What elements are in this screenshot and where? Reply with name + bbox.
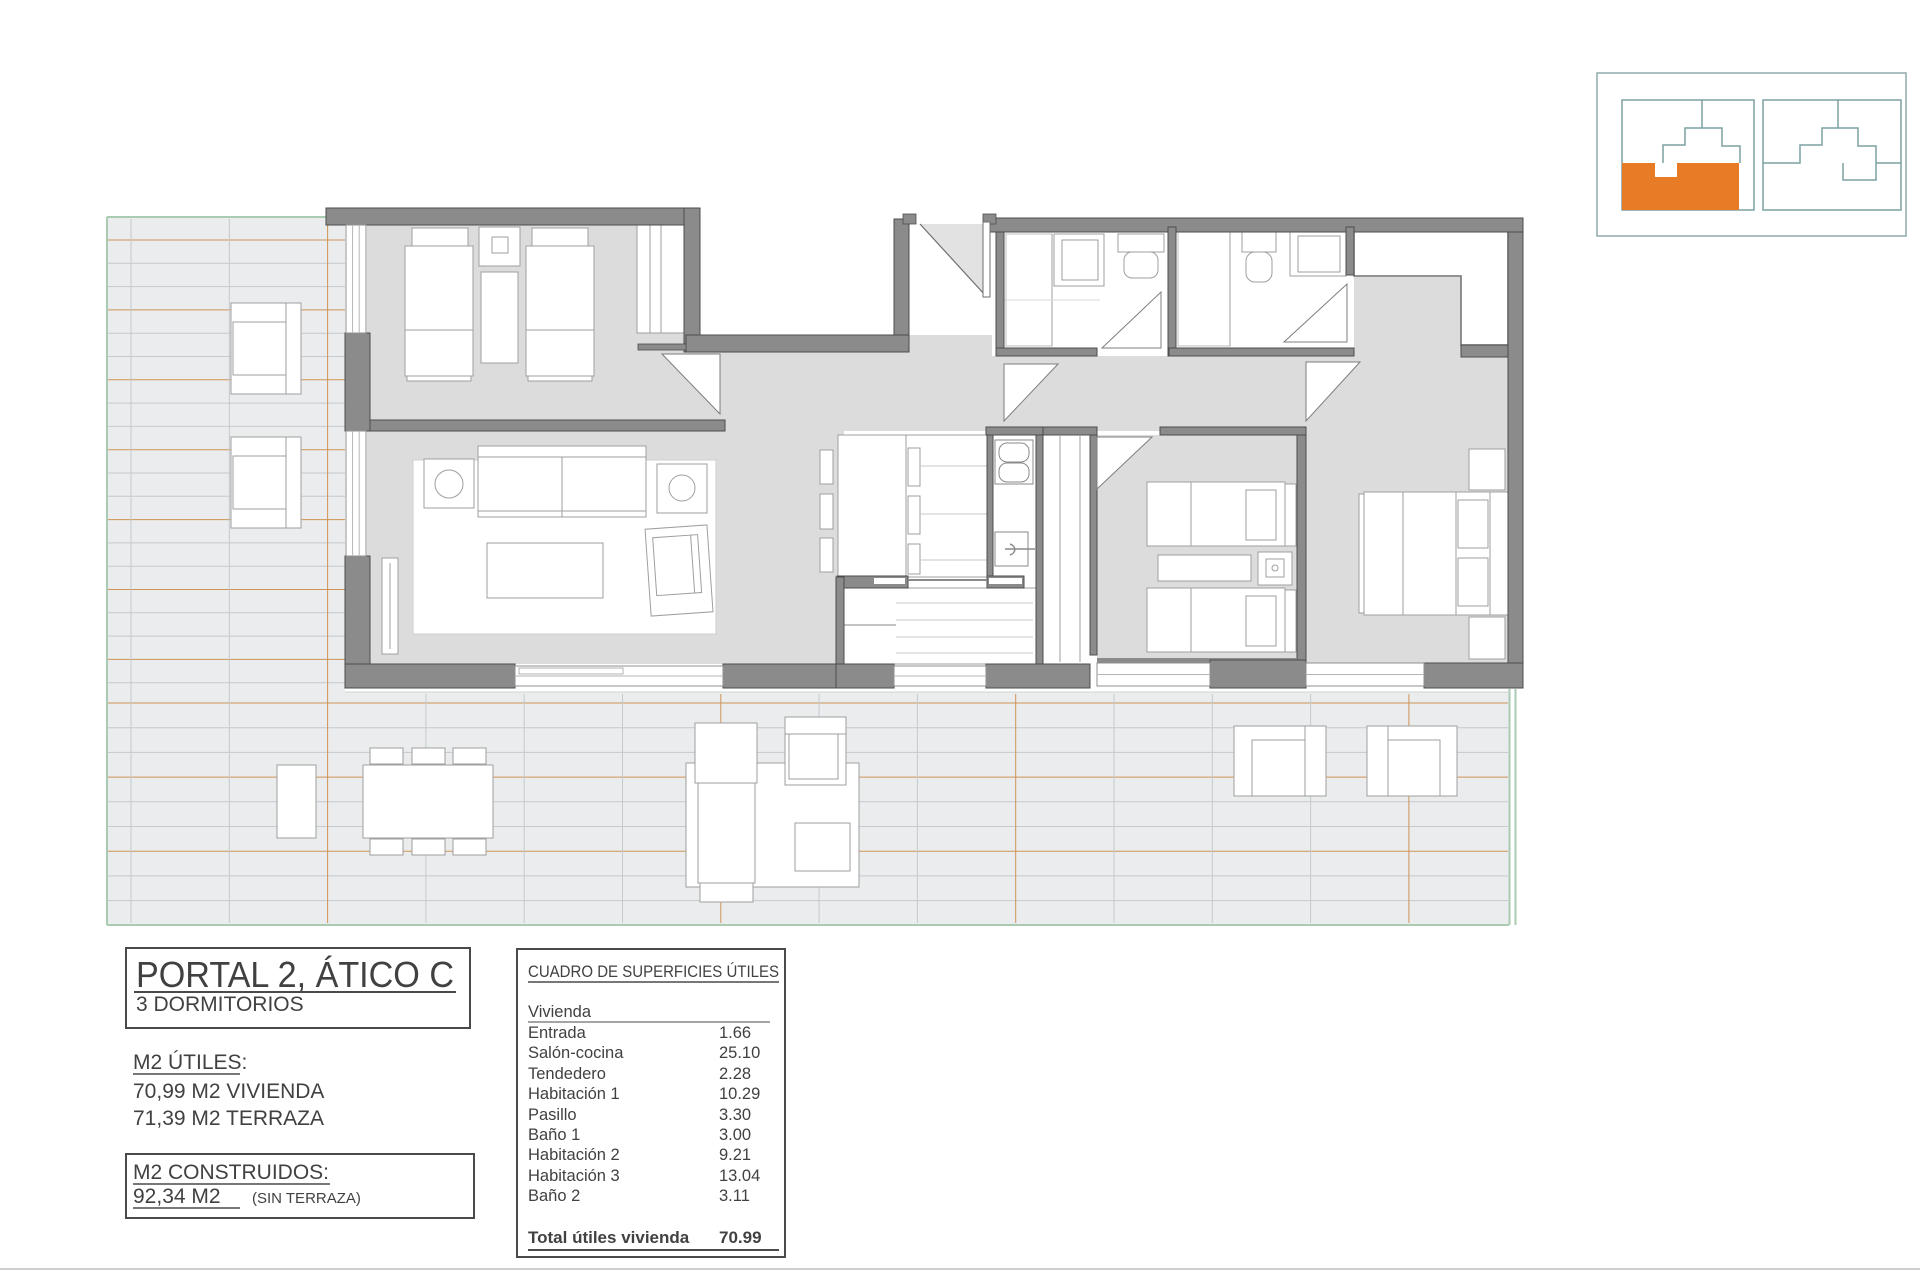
svg-text:Entrada: Entrada (528, 1024, 587, 1042)
svg-text:Baño 2: Baño 2 (528, 1187, 580, 1205)
svg-text:92,34 M2: 92,34 M2 (133, 1185, 221, 1208)
svg-text:Tendedero: Tendedero (528, 1065, 606, 1083)
svg-text:3.30: 3.30 (719, 1106, 751, 1124)
svg-text:2.28: 2.28 (719, 1065, 751, 1083)
svg-text:Pasillo: Pasillo (528, 1106, 577, 1124)
svg-text:M2 CONSTRUIDOS:: M2 CONSTRUIDOS: (133, 1161, 329, 1184)
svg-text:71,39 M2 TERRAZA: 71,39 M2 TERRAZA (133, 1107, 324, 1130)
svg-text:Habitación 2: Habitación 2 (528, 1146, 620, 1164)
svg-text:Habitación 3: Habitación 3 (528, 1167, 620, 1185)
svg-text:25.10: 25.10 (719, 1044, 760, 1062)
svg-text:70,99 M2 VIVIENDA: 70,99 M2 VIVIENDA (133, 1080, 324, 1103)
svg-text:Total útiles vivienda: Total útiles vivienda (528, 1228, 690, 1247)
svg-text:Baño 1: Baño 1 (528, 1126, 580, 1144)
svg-text:3.11: 3.11 (719, 1187, 750, 1205)
svg-text:Salón-cocina: Salón-cocina (528, 1044, 624, 1062)
svg-text:Vivienda: Vivienda (528, 1003, 592, 1021)
svg-text:M2 ÚTILES:: M2 ÚTILES: (133, 1051, 247, 1074)
svg-text:CUADRO DE SUPERFICIES ÚTILES: CUADRO DE SUPERFICIES ÚTILES (528, 962, 779, 981)
svg-text:3.00: 3.00 (719, 1126, 751, 1144)
svg-text:70.99: 70.99 (719, 1228, 762, 1247)
svg-text:9.21: 9.21 (719, 1146, 751, 1164)
svg-text:(SIN TERRAZA): (SIN TERRAZA) (252, 1190, 361, 1207)
svg-text:Habitación 1: Habitación 1 (528, 1085, 620, 1103)
svg-text:PORTAL 2, ÁTICO C: PORTAL 2, ÁTICO C (136, 954, 454, 995)
svg-text:10.29: 10.29 (719, 1085, 760, 1103)
svg-text:1.66: 1.66 (719, 1024, 751, 1042)
svg-text:13.04: 13.04 (719, 1167, 760, 1185)
svg-text:3 DORMITORIOS: 3 DORMITORIOS (136, 993, 304, 1016)
